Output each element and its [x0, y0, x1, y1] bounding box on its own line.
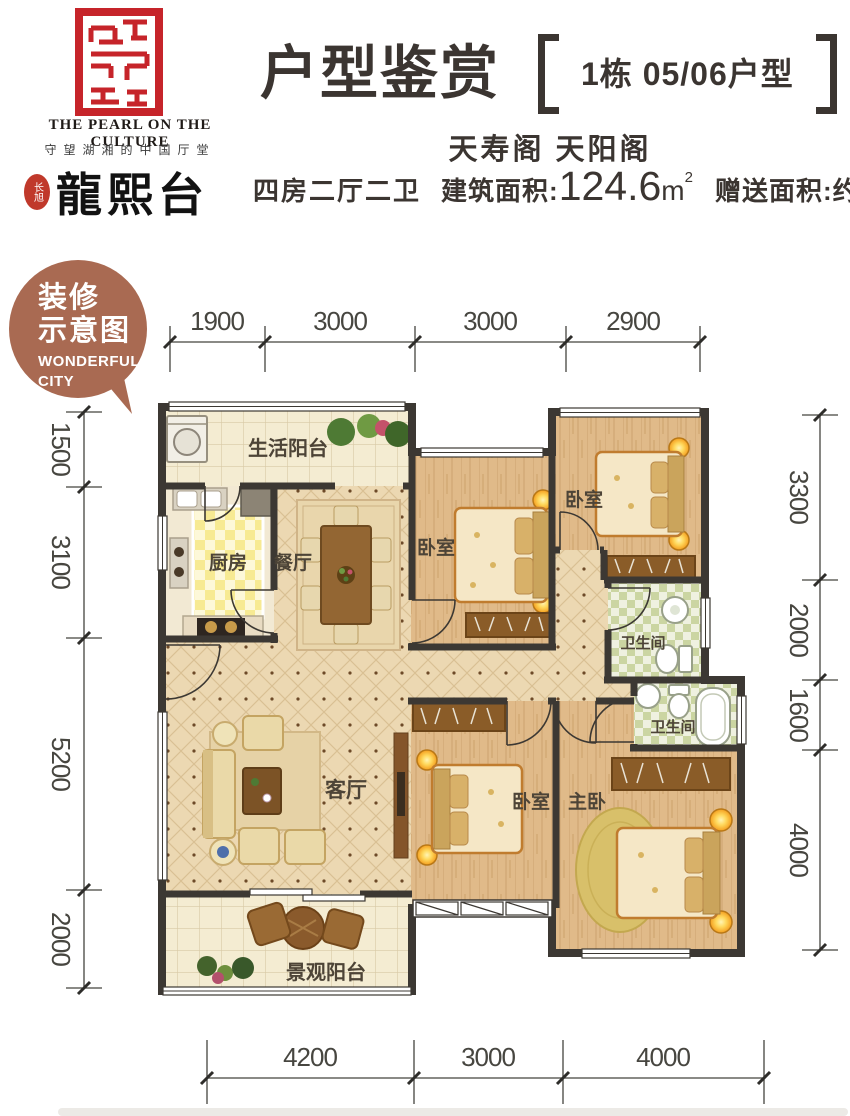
bedroom1-bed [455, 490, 553, 637]
dim-left-2: 3100 [48, 512, 76, 612]
label-bath1: 卫生间 [620, 634, 665, 652]
awning-windows [413, 900, 552, 917]
dim-top-2: 3000 [295, 306, 385, 337]
floorplan-poster: THE PEARL ON THE CULTURE 守望湖湘的中国厅堂 长旭 龍熙… [0, 0, 850, 1116]
dim-left-1: 1500 [48, 399, 76, 499]
dim-bottom-2: 3000 [443, 1042, 533, 1073]
label-master: 主卧 [568, 791, 606, 813]
label-kitchen: 厨房 [209, 551, 247, 574]
dim-left-3: 5200 [48, 714, 76, 814]
label-bedroom3: 卧室 [512, 790, 550, 813]
dim-right-4: 4000 [786, 800, 814, 900]
floor-plan: 生活阳台 厨房 餐厅 卧室 卧室 卫生间 卫生间 客厅 卧室 主卧 景观阳台 [155, 400, 755, 1000]
label-view-balcony: 景观阳台 [286, 960, 366, 984]
bubble-line1: 装修 [38, 282, 140, 315]
label-bedroom1: 卧室 [417, 536, 455, 559]
label-service-balcony: 生活阳台 [248, 436, 328, 460]
dim-top-1: 1900 [172, 306, 262, 337]
label-living: 客厅 [325, 778, 367, 802]
dim-bottom-1: 4200 [265, 1042, 355, 1073]
bubble-text: 装修 示意图 WONDERFUL CITY [38, 282, 140, 392]
dim-right-3: 1600 [786, 665, 814, 765]
label-dining: 餐厅 [274, 551, 312, 574]
label-bath2: 卫生间 [650, 718, 695, 736]
dim-bottom-3: 4000 [618, 1042, 708, 1073]
dim-right-1: 3300 [786, 447, 814, 547]
bubble-line2: 示意图 [38, 315, 140, 348]
bubble-line4: CITY [38, 372, 140, 392]
bubble-line3: WONDERFUL [38, 352, 140, 372]
bedroom2-bed [596, 438, 695, 578]
dim-top-4: 2900 [588, 306, 678, 337]
dining-set [297, 500, 400, 650]
label-bedroom2: 卧室 [565, 488, 603, 511]
dim-left-4: 2000 [48, 889, 76, 989]
dim-top-3: 3000 [445, 306, 535, 337]
